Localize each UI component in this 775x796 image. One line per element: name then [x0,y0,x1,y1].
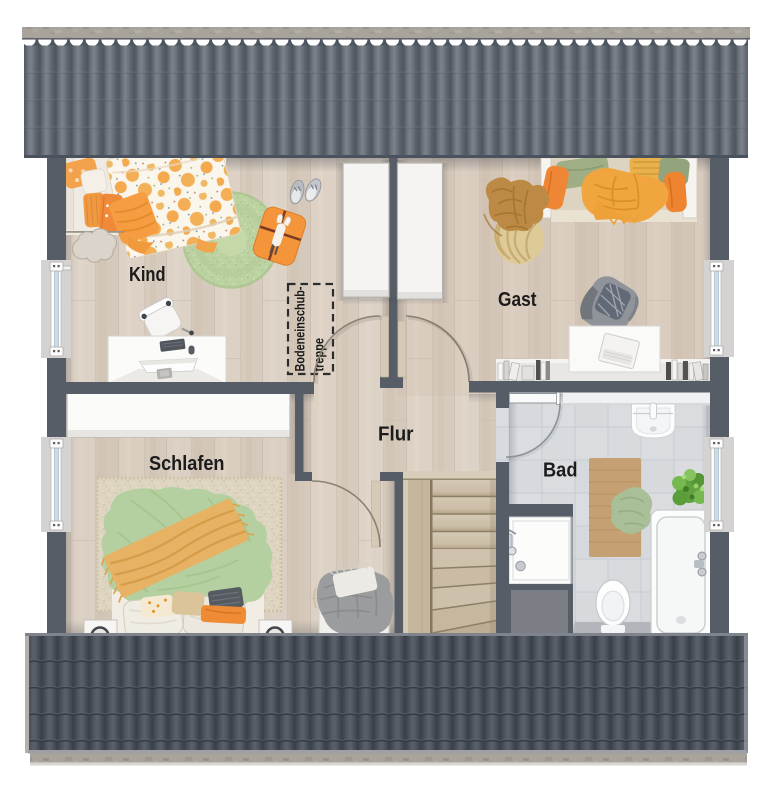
svg-text:Flur: Flur [378,423,414,446]
svg-text:Schlafen: Schlafen [149,452,225,475]
svg-text:Bodeneinschub-: Bodeneinschub- [293,287,308,372]
svg-text:Bad: Bad [543,459,578,482]
svg-text:Kind: Kind [129,263,166,286]
svg-text:Gast: Gast [498,288,537,311]
